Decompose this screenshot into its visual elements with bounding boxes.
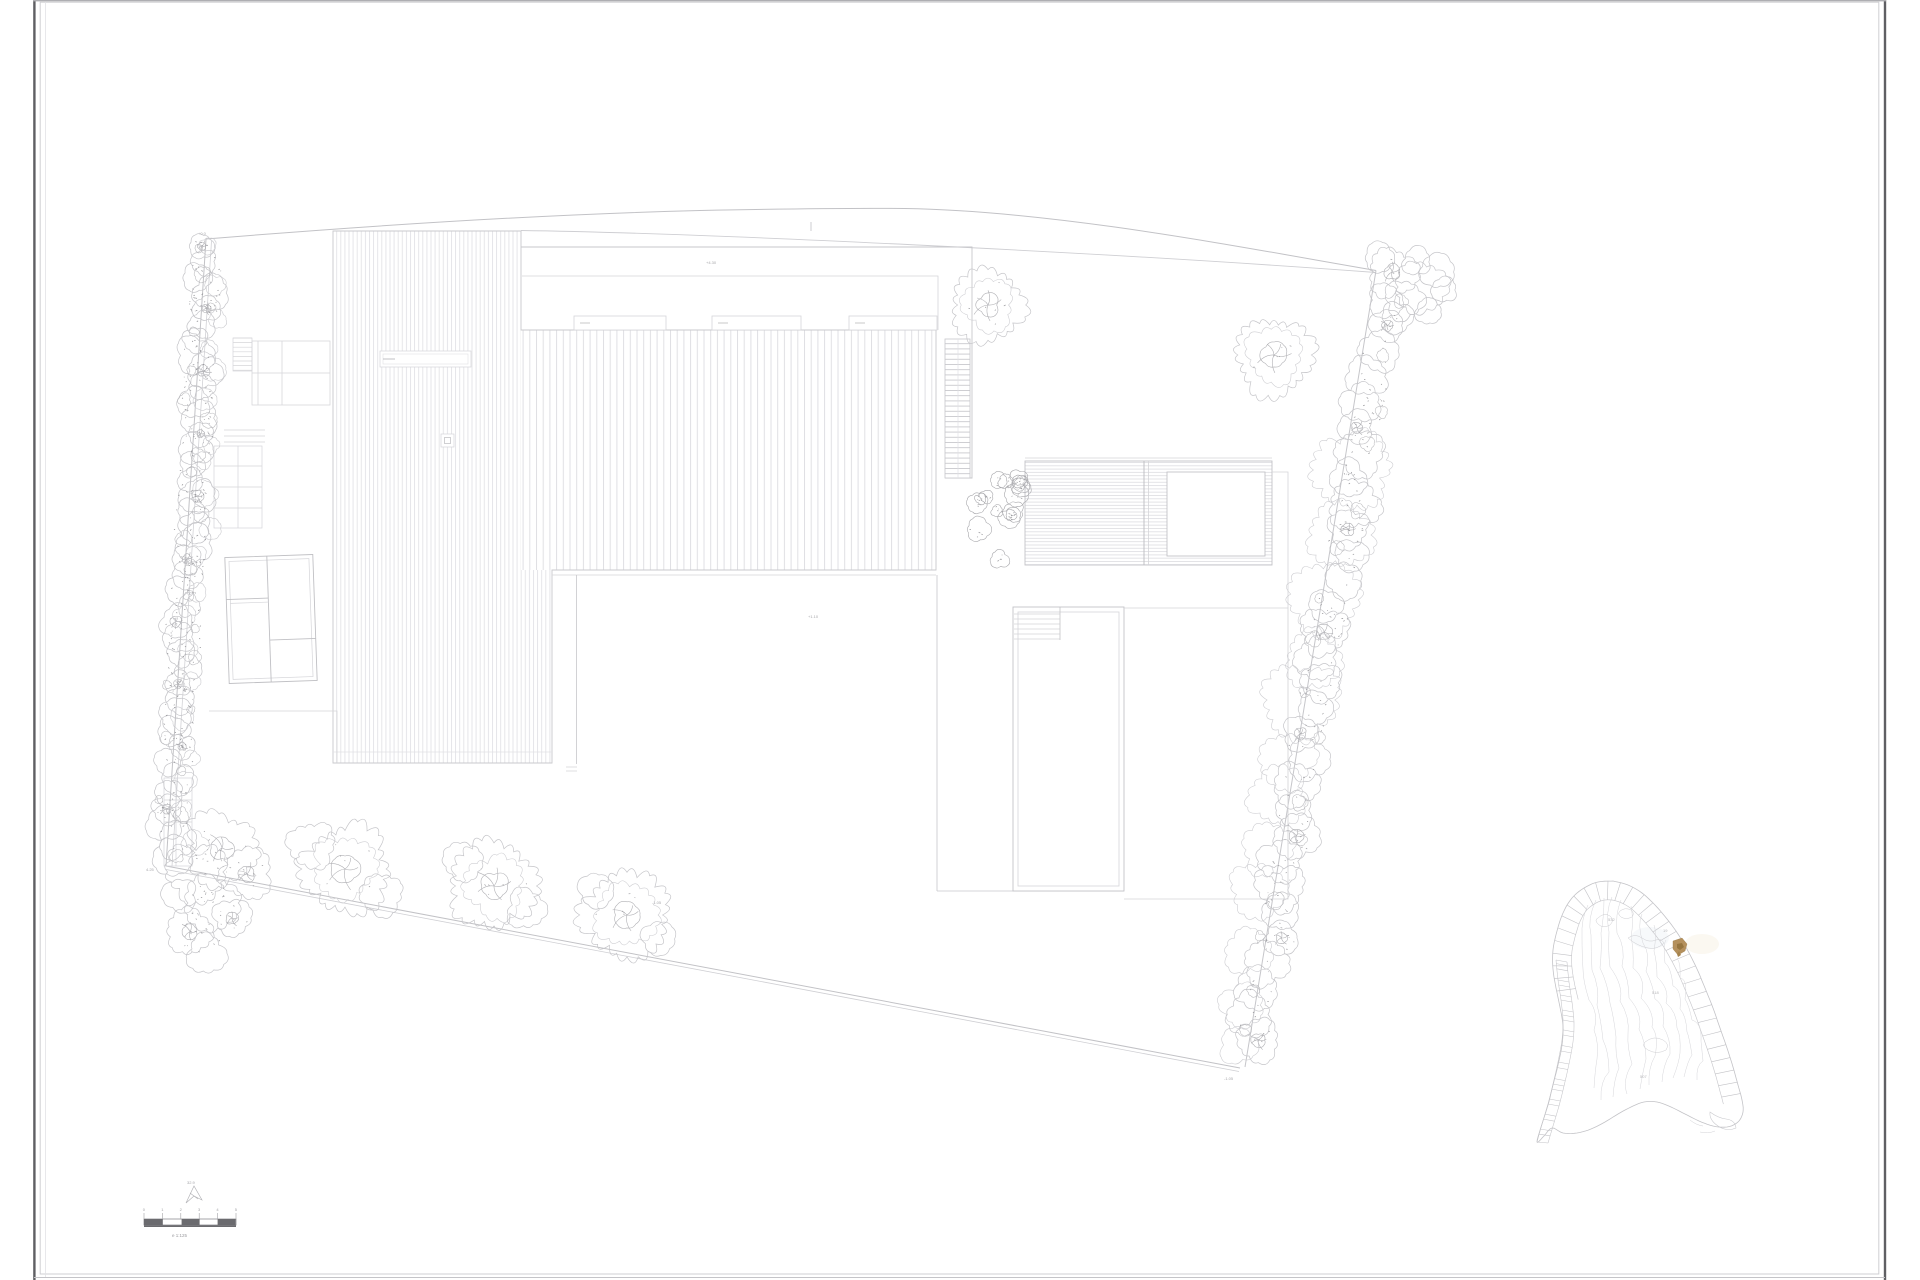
- svg-text:507: 507: [1640, 1074, 1647, 1079]
- svg-text:e 1:125: e 1:125: [172, 1233, 188, 1238]
- svg-text:532: 532: [1608, 917, 1615, 922]
- svg-text:+1.10: +1.10: [808, 614, 819, 619]
- svg-text:19: 19: [1663, 928, 1668, 933]
- svg-text:518: 518: [1652, 990, 1659, 995]
- svg-text:4.25: 4.25: [146, 867, 155, 872]
- svg-text:+4.30: +4.30: [706, 260, 717, 265]
- svg-text:-1.05: -1.05: [1224, 1076, 1234, 1081]
- svg-text:32.9: 32.9: [187, 1180, 196, 1185]
